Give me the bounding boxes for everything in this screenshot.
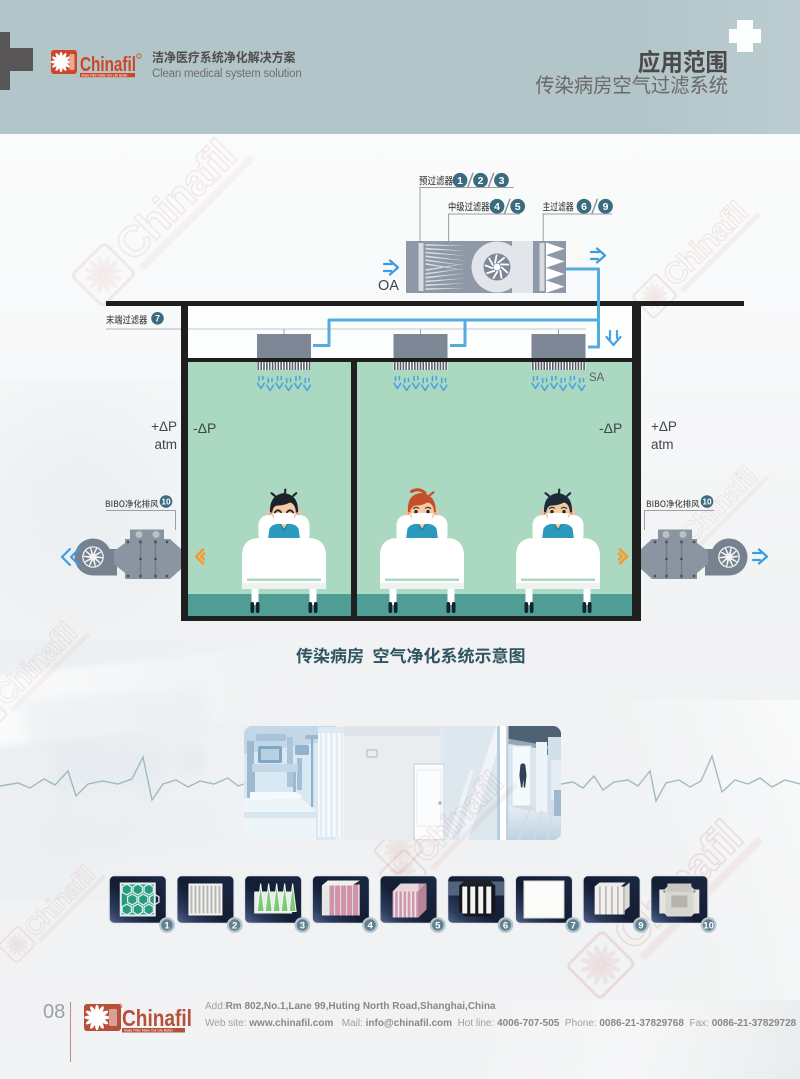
svg-text:-ΔP: -ΔP <box>599 420 622 436</box>
svg-text:Make Filter Make Our Life Bett: Make Filter Make Our Life Better <box>124 1029 174 1033</box>
svg-text:9: 9 <box>638 920 643 931</box>
svg-text:Chinafil: Chinafil <box>122 1005 192 1031</box>
svg-text:+ΔP: +ΔP <box>651 419 677 434</box>
svg-text:7: 7 <box>155 314 160 324</box>
svg-text:1: 1 <box>457 175 463 187</box>
svg-text:atm: atm <box>154 437 177 452</box>
svg-text:3: 3 <box>300 920 305 931</box>
svg-text:3: 3 <box>499 175 505 187</box>
svg-text:atm: atm <box>651 437 674 452</box>
svg-text:5: 5 <box>435 920 441 931</box>
svg-text:Chinafil: Chinafil <box>656 195 754 293</box>
svg-text:2: 2 <box>232 920 237 931</box>
svg-text:10: 10 <box>703 920 714 931</box>
svg-text:9: 9 <box>603 201 609 213</box>
svg-text:5: 5 <box>515 201 521 213</box>
svg-text:2: 2 <box>478 175 484 187</box>
svg-text:4: 4 <box>367 920 373 931</box>
svg-text:Chinafil: Chinafil <box>19 861 100 942</box>
svg-text:6: 6 <box>581 201 587 213</box>
svg-text:1: 1 <box>164 920 170 931</box>
svg-text:6: 6 <box>503 920 508 931</box>
svg-text:7: 7 <box>571 920 576 931</box>
svg-text:SA: SA <box>589 372 605 384</box>
svg-text:4: 4 <box>494 201 500 213</box>
svg-text:Clean medical system solution: Clean medical system solution <box>152 68 302 80</box>
svg-text:+ΔP: +ΔP <box>151 419 177 434</box>
svg-text:OA: OA <box>378 278 399 294</box>
svg-text:Chinafil: Chinafil <box>106 132 245 271</box>
svg-text:10: 10 <box>702 497 712 507</box>
svg-text:10: 10 <box>161 497 171 507</box>
svg-text:-ΔP: -ΔP <box>193 420 216 436</box>
